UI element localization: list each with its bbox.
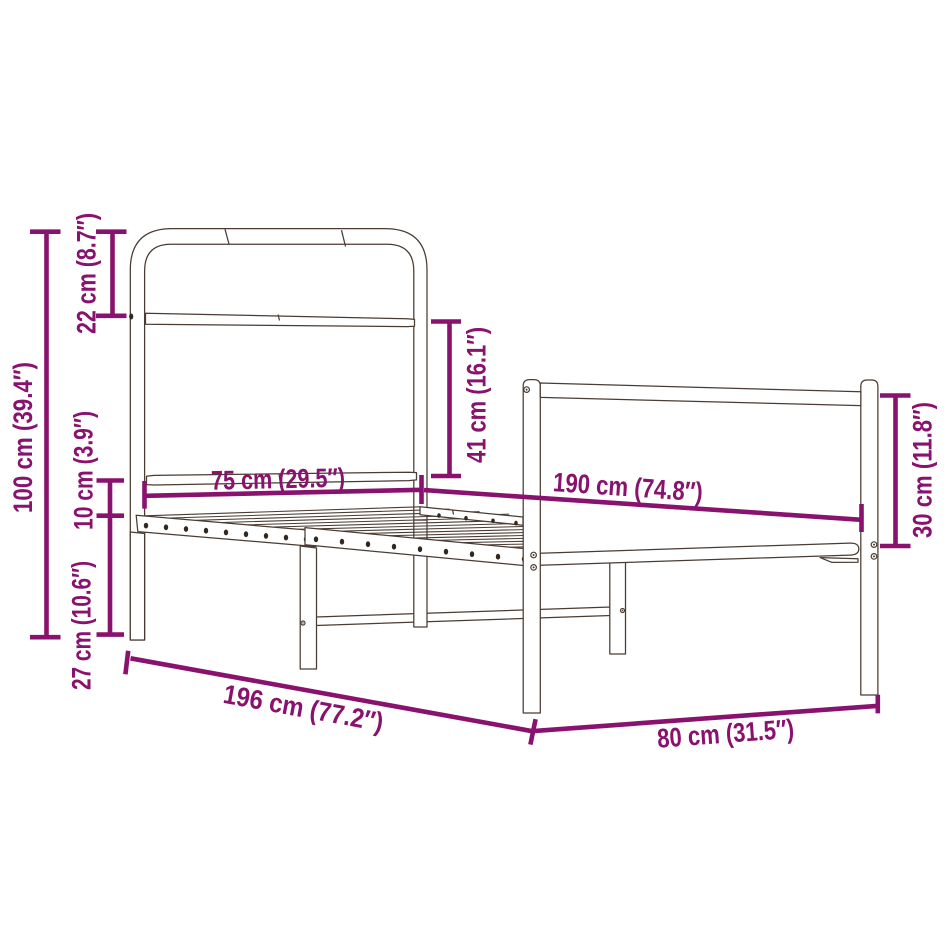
svg-text:10 cm (3.9″): 10 cm (3.9″) bbox=[69, 411, 99, 530]
svg-text:75 cm (29.5″): 75 cm (29.5″) bbox=[211, 463, 346, 496]
svg-text:41 cm (16.1″): 41 cm (16.1″) bbox=[462, 327, 492, 463]
svg-text:100 cm (39.4″): 100 cm (39.4″) bbox=[8, 362, 38, 513]
svg-text:22 cm (8.7″): 22 cm (8.7″) bbox=[72, 213, 102, 334]
svg-text:30 cm (11.8″): 30 cm (11.8″) bbox=[908, 402, 938, 538]
svg-text:27 cm (10.6″): 27 cm (10.6″) bbox=[67, 561, 97, 690]
